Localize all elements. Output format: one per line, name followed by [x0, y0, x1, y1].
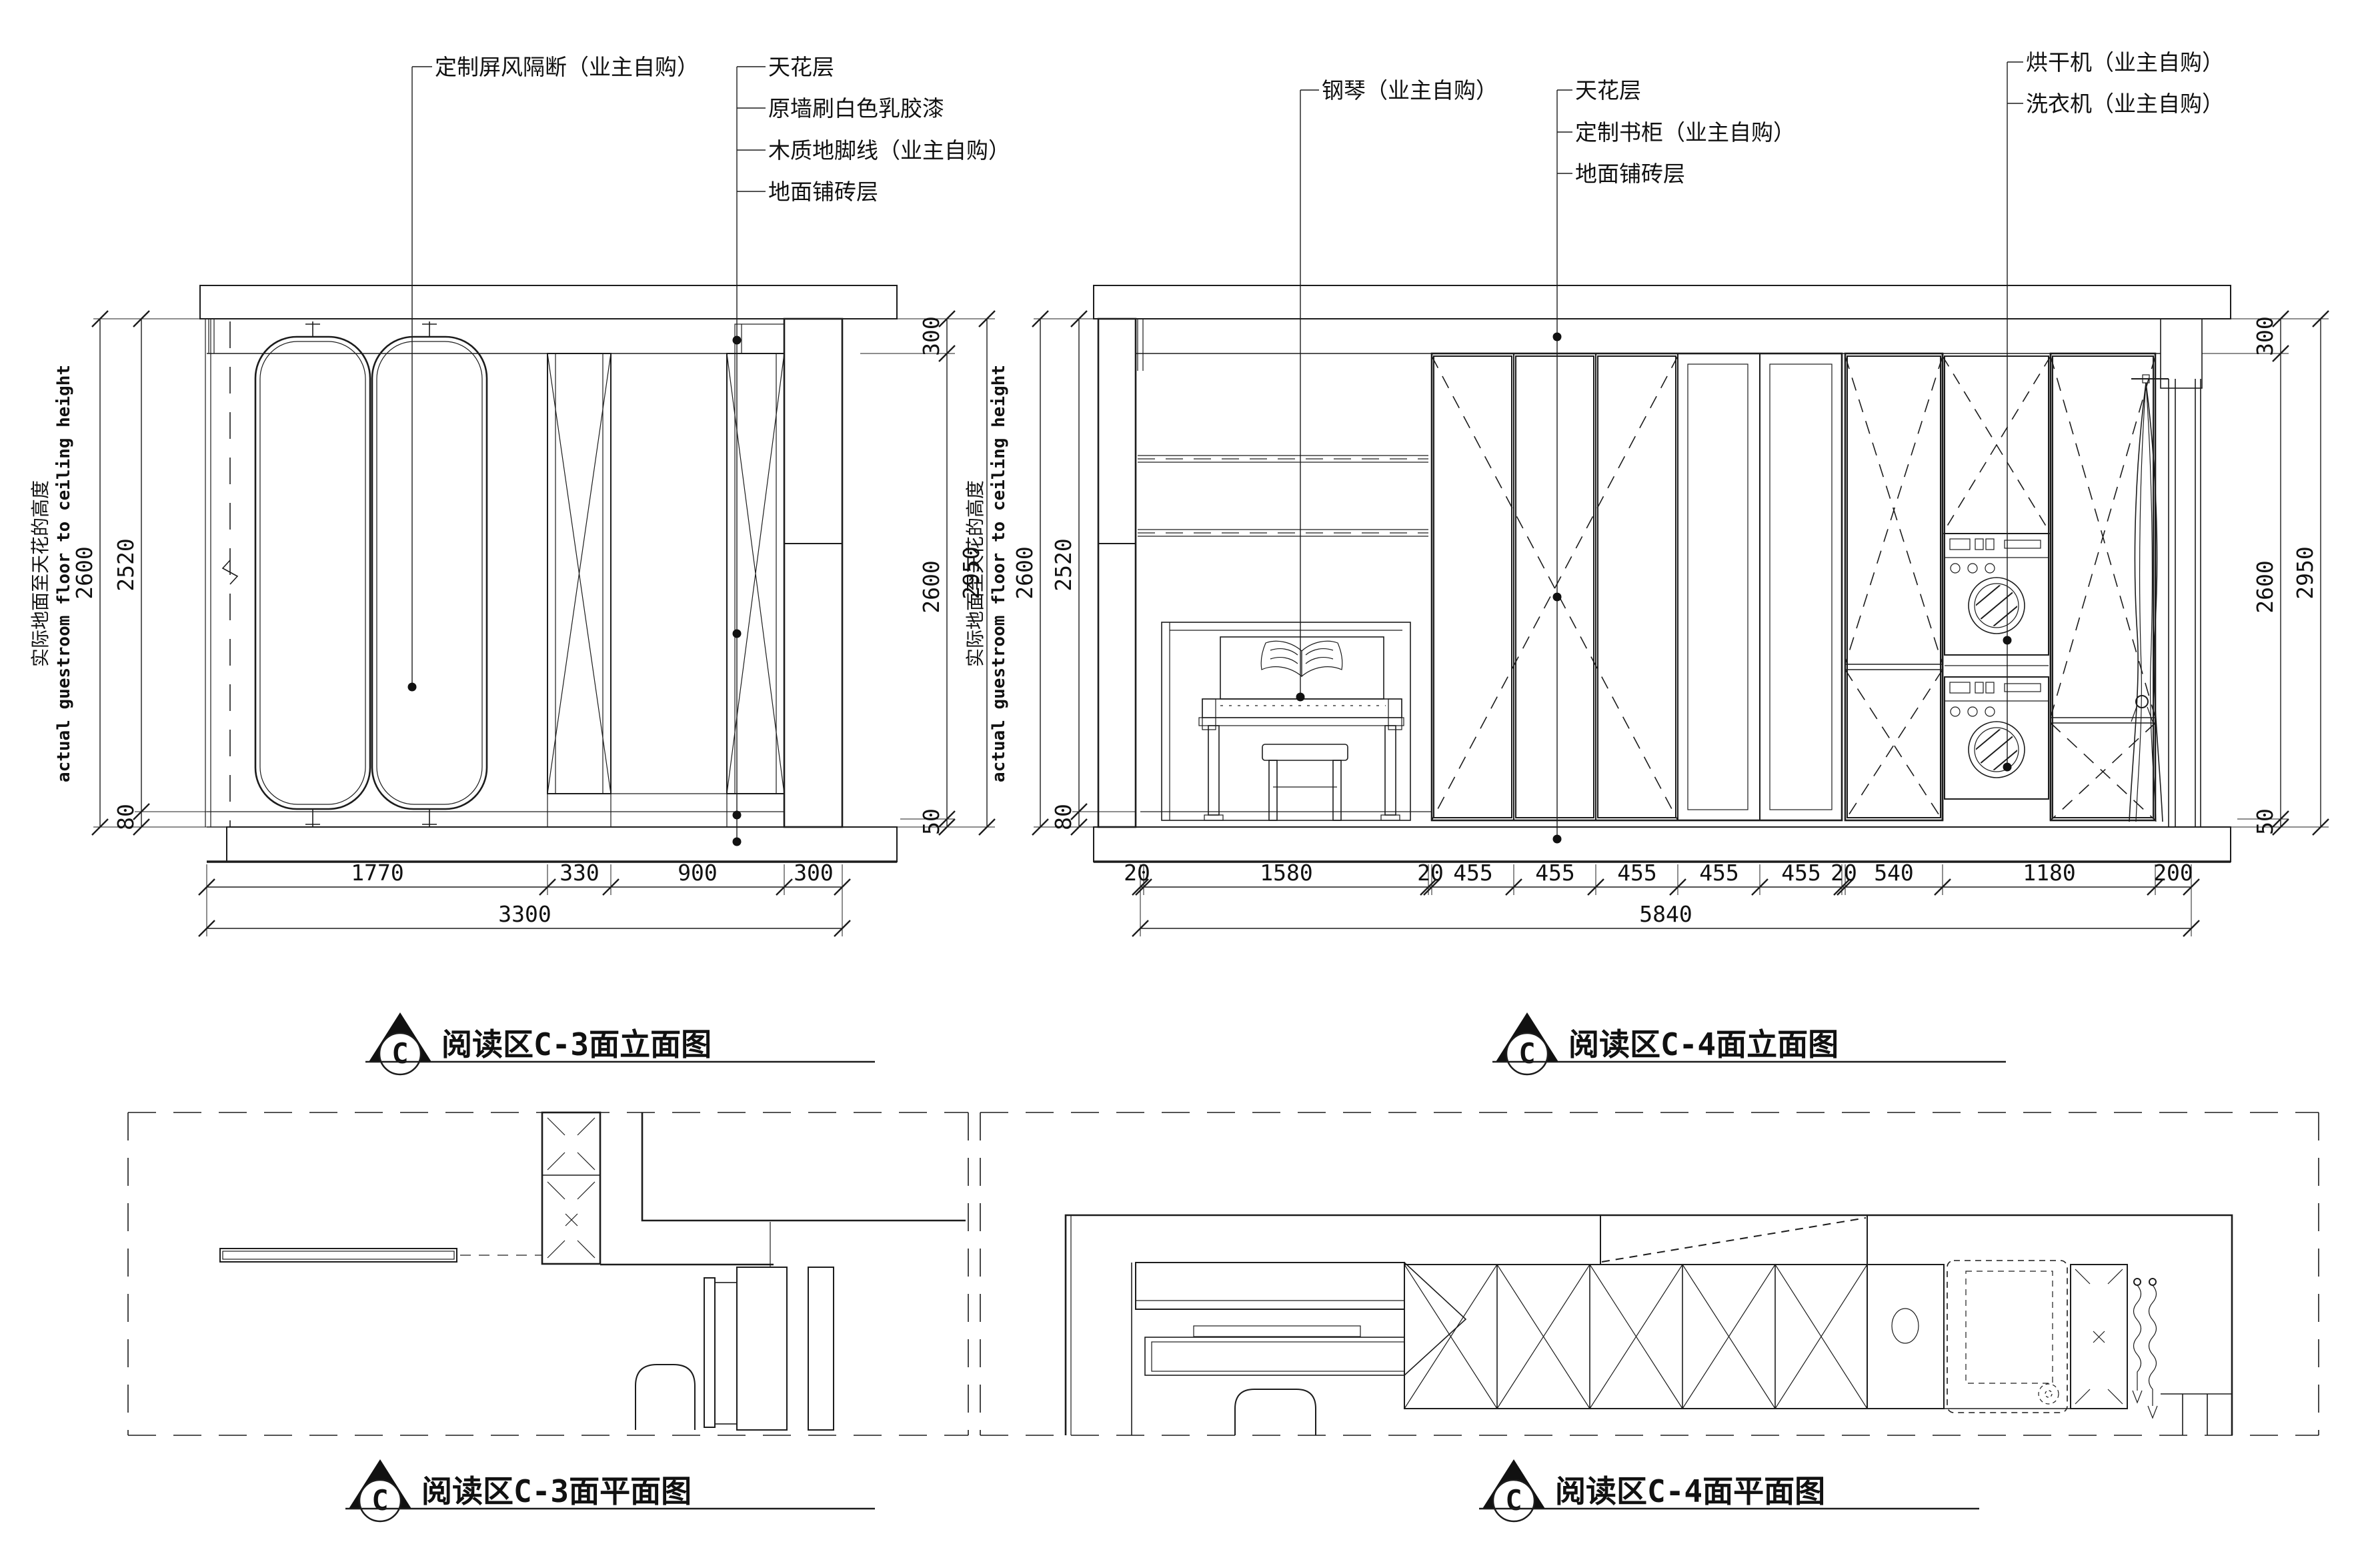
c4-dim-2520: 2520 — [1050, 538, 1076, 591]
cad-drawing-sheet: 定制屏风隔断（业主自购） 天花层 原墙刷白色乳胶漆 木质地脚线（业主自购） 地面… — [0, 0, 2380, 1568]
c4-side-label-en: actual guestroom floor to ceiling height — [989, 365, 1009, 782]
c3-elevation-title: C 阅读区C-3面立面图 — [365, 1012, 875, 1074]
c4-plan-x-panel — [2071, 1265, 2127, 1409]
c4-callout-ceiling: 天花层 — [1575, 77, 1641, 103]
c4-dim-1180: 1180 — [2023, 860, 2075, 886]
c4-callout-dryer: 烘干机（业主自购） — [2026, 49, 2224, 75]
c3-plan-x-column — [542, 1112, 600, 1264]
drawing-canvas: 定制屏风隔断（业主自购） 天花层 原墙刷白色乳胶漆 木质地脚线（业主自购） 地面… — [0, 0, 2380, 1568]
c4-dim-20c: 20 — [1831, 860, 1857, 886]
c3-dim-2600-right: 2600 — [918, 560, 944, 613]
c4-piano-bench — [1262, 744, 1348, 820]
c4-plan-title: C 阅读区C-4面平面图 — [1479, 1459, 1979, 1521]
c3-dim-1770: 1770 — [351, 860, 403, 886]
c4-floor-slab-hatch — [1094, 827, 2231, 862]
c3-plan-drawing — [128, 1112, 968, 1435]
c4-elevation-title-text: 阅读区C-4面立面图 — [1568, 1026, 1839, 1062]
c4-dim-50: 50 — [2252, 808, 2278, 835]
c3-section-cut-line — [223, 321, 237, 827]
c4-dim-2600-left: 2600 — [1012, 546, 1038, 599]
c4-dim-20a: 20 — [1124, 860, 1150, 886]
c3-elevation-drawing — [200, 285, 897, 862]
c4-dim-5840: 5840 — [1639, 901, 1692, 927]
c4-plan-piano — [1132, 1263, 1466, 1435]
c3-dim-330: 330 — [559, 860, 600, 886]
c3-left-edge — [205, 319, 211, 827]
c3-dim-2600-left: 2600 — [71, 546, 97, 599]
c4-dim-80: 80 — [1050, 804, 1076, 830]
c4-window — [2131, 319, 2202, 827]
c3-callout-floor-tile: 地面铺砖层 — [768, 179, 878, 205]
c4-callout-floor-tile: 地面铺砖层 — [1575, 161, 1685, 187]
washer-unit — [1945, 677, 2049, 799]
c3-side-label-en: actual guestroom floor to ceiling height — [54, 365, 74, 782]
c4-dim-455d: 455 — [1699, 860, 1739, 886]
c3-elevation-title-text: 阅读区C-3面立面图 — [441, 1026, 712, 1062]
c4-plan-solid-wall — [1600, 1215, 1867, 1265]
open-book-icon — [1261, 641, 1342, 676]
c3-floor-slab-hatch — [207, 827, 897, 862]
c4-ceiling-slab-hatch — [1094, 285, 2231, 319]
c4-dim-2950: 2950 — [2292, 546, 2318, 599]
c3-dimensions: 2600 2520 80 300 2600 50 2950 1770 330 9… — [29, 311, 995, 936]
c4-tall-wood-door — [1845, 353, 1943, 820]
c4-piano — [1199, 637, 1404, 820]
c4-shelf-lines — [1138, 456, 1428, 536]
c4-curtain — [2129, 375, 2163, 822]
c4-side-label-cn: 实际地面至天花的高度 — [964, 480, 986, 667]
c3-screen-panel-2 — [372, 321, 487, 827]
c3-screen-panel-1 — [255, 321, 370, 827]
c3-plan-title-symbol: C — [371, 1484, 388, 1517]
c3-dim-900: 900 — [678, 860, 718, 886]
c4-callout-washer: 洗衣机（业主自购） — [2026, 91, 2224, 117]
c4-callout-bookcase: 定制书柜（业主自购） — [1575, 119, 1795, 145]
c4-dim-455e: 455 — [1781, 860, 1821, 886]
c3-side-label-cn: 实际地面至天花的高度 — [29, 480, 51, 667]
c4-plan-window-bay — [2161, 1394, 2232, 1435]
c4-plan-washer — [1947, 1261, 2067, 1413]
c3-ceiling-slab-hatch — [200, 285, 897, 319]
c3-dim-300b: 300 — [794, 860, 834, 886]
c4-plan-title-symbol: C — [1505, 1484, 1522, 1517]
c4-callout-piano: 钢琴（业主自购） — [1322, 77, 1498, 103]
c3-callout-wall-paint: 原墙刷白色乳胶漆 — [768, 95, 944, 121]
c3-x-panel-2 — [727, 353, 784, 827]
c3-plan-wall — [642, 1112, 966, 1221]
c3-callout-screen: 定制屏风隔断（业主自购） — [435, 54, 699, 80]
c4-plan-wardrobe-row — [1404, 1265, 1867, 1409]
c4-plan-drawing — [980, 1112, 2319, 1435]
c4-dim-1580: 1580 — [1260, 860, 1312, 886]
c4-dim-455a: 455 — [1453, 860, 1493, 886]
c3-plan-title-text: 阅读区C-3面平面图 — [421, 1473, 692, 1509]
c4-elevation-title-symbol: C — [1518, 1037, 1535, 1070]
c4-dim-540: 540 — [1874, 860, 1914, 886]
c4-plan-curtain — [2133, 1279, 2157, 1418]
c4-elevation-title: C 阅读区C-4面立面图 — [1492, 1012, 2006, 1074]
c3-plan-screen — [220, 1249, 542, 1262]
c3-plan-title: C 阅读区C-3面平面图 — [345, 1459, 875, 1521]
c3-dim-300: 300 — [918, 316, 944, 356]
c4-washer-dryer-stack — [1943, 353, 2051, 820]
c4-plan-bench — [1235, 1389, 1316, 1435]
c3-callout-ceiling: 天花层 — [768, 54, 834, 80]
c4-dim-200: 200 — [2153, 860, 2193, 886]
c3-x-panel-1 — [547, 353, 611, 827]
c3-dim-80: 80 — [113, 804, 139, 830]
c3-dim-2520: 2520 — [113, 538, 139, 591]
c4-left-wall-section — [1098, 319, 1143, 827]
c4-dim-300: 300 — [2252, 316, 2278, 356]
c4-dim-20b: 20 — [1417, 860, 1444, 886]
c4-bookcase-wood-doors — [1432, 353, 1842, 820]
c3-plan-piano — [704, 1222, 834, 1430]
c3-plan-bench — [636, 1365, 695, 1430]
c3-right-wall-section — [784, 319, 842, 827]
c4-dim-455b: 455 — [1535, 860, 1575, 886]
c4-dim-2600-right: 2600 — [2252, 560, 2278, 613]
c4-plan-column-box — [1867, 1265, 1944, 1409]
c3-dim-50: 50 — [918, 808, 944, 835]
c4-dimensions: 2600 2520 80 300 2600 50 2950 20 1580 20… — [964, 311, 2329, 936]
dryer-unit — [1945, 534, 2049, 655]
c3-dim-3300: 3300 — [498, 901, 551, 927]
c3-elevation-title-symbol: C — [391, 1037, 408, 1070]
c3-callout-skirting: 木质地脚线（业主自购） — [768, 137, 1010, 163]
c4-dim-455c: 455 — [1617, 860, 1657, 886]
c4-plan-room-outline — [1066, 1215, 2232, 1435]
c4-elevation-drawing — [1094, 285, 2231, 862]
c4-plan-title-text: 阅读区C-4面平面图 — [1555, 1473, 1825, 1509]
c3-callouts: 定制屏风隔断（业主自购） 天花层 原墙刷白色乳胶漆 木质地脚线（业主自购） 地面… — [408, 54, 1011, 846]
